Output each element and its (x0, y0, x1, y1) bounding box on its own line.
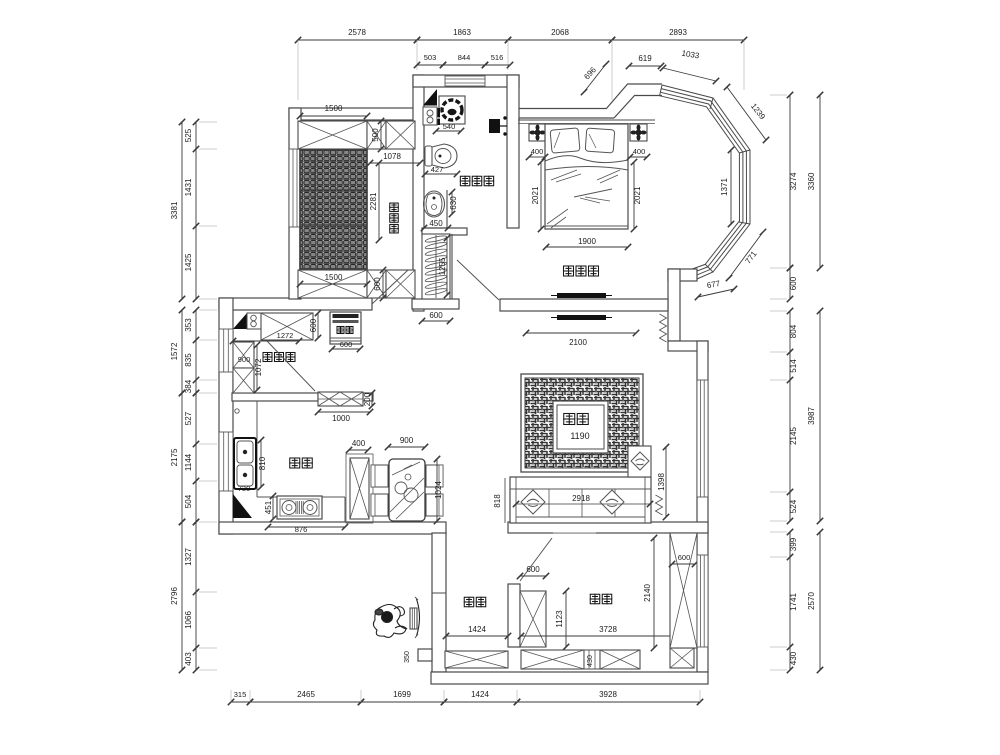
svg-text:1425: 1425 (184, 253, 193, 271)
svg-text:900: 900 (238, 355, 251, 364)
svg-text:427: 427 (431, 165, 444, 174)
svg-text:527: 527 (184, 411, 193, 425)
svg-text:835: 835 (184, 353, 193, 367)
svg-text:1699: 1699 (393, 690, 411, 699)
svg-text:2145: 2145 (789, 427, 798, 445)
svg-text:403: 403 (184, 652, 193, 666)
svg-text:315: 315 (234, 690, 247, 699)
svg-text:2021: 2021 (531, 186, 540, 204)
svg-text:876: 876 (295, 525, 308, 534)
svg-text:516: 516 (491, 53, 504, 62)
svg-text:1072: 1072 (254, 358, 263, 376)
svg-text:430: 430 (789, 651, 798, 665)
svg-text:1272: 1272 (277, 331, 294, 340)
svg-text:353: 353 (184, 318, 193, 332)
svg-text:2570: 2570 (807, 592, 816, 610)
svg-text:900: 900 (400, 436, 414, 445)
svg-text:2918: 2918 (572, 494, 590, 503)
svg-text:1431: 1431 (184, 178, 193, 196)
svg-text:1190: 1190 (570, 431, 589, 441)
svg-text:2021: 2021 (633, 186, 642, 204)
svg-text:2796: 2796 (170, 587, 179, 605)
svg-text:2175: 2175 (170, 448, 179, 466)
svg-text:1900: 1900 (578, 237, 596, 246)
svg-text:600: 600 (373, 277, 382, 291)
svg-text:1500: 1500 (325, 104, 343, 113)
svg-text:1398: 1398 (657, 473, 666, 491)
svg-text:3987: 3987 (807, 407, 816, 425)
svg-text:400: 400 (531, 147, 544, 156)
svg-text:1500: 1500 (325, 273, 343, 282)
svg-text:3381: 3381 (170, 201, 179, 219)
svg-text:1741: 1741 (789, 593, 798, 611)
svg-text:430: 430 (587, 655, 594, 667)
svg-text:1371: 1371 (720, 178, 729, 196)
svg-text:400: 400 (633, 147, 646, 156)
svg-text:2578: 2578 (348, 28, 366, 37)
svg-text:451: 451 (264, 500, 273, 514)
svg-text:1024: 1024 (434, 481, 443, 499)
svg-text:1572: 1572 (170, 342, 179, 360)
svg-text:399: 399 (789, 537, 798, 551)
svg-text:504: 504 (184, 494, 193, 508)
svg-text:600: 600 (526, 565, 540, 574)
svg-text:1863: 1863 (453, 28, 471, 37)
svg-text:630: 630 (449, 196, 458, 210)
svg-text:1078: 1078 (383, 152, 401, 161)
svg-text:1255: 1255 (438, 257, 447, 275)
svg-text:2140: 2140 (643, 584, 652, 602)
svg-text:2281: 2281 (369, 192, 378, 210)
svg-text:600: 600 (429, 311, 443, 320)
svg-text:1066: 1066 (184, 611, 193, 629)
svg-text:3728: 3728 (599, 625, 617, 634)
svg-text:1123: 1123 (555, 610, 564, 628)
svg-text:450: 450 (429, 219, 443, 228)
svg-text:350: 350 (404, 651, 411, 663)
svg-text:1144: 1144 (184, 453, 193, 471)
svg-text:1327: 1327 (184, 548, 193, 566)
svg-text:3360: 3360 (807, 172, 816, 190)
svg-text:540: 540 (443, 122, 456, 131)
svg-text:2100: 2100 (569, 338, 587, 347)
svg-text:200: 200 (363, 392, 372, 406)
svg-text:384: 384 (184, 379, 193, 393)
svg-text:600: 600 (678, 553, 691, 562)
svg-text:600: 600 (309, 318, 318, 332)
svg-text:525: 525 (184, 128, 193, 142)
svg-text:503: 503 (424, 53, 437, 62)
svg-text:2068: 2068 (551, 28, 569, 37)
svg-text:818: 818 (493, 494, 502, 508)
svg-text:524: 524 (789, 499, 798, 513)
svg-text:619: 619 (638, 54, 652, 63)
svg-text:804: 804 (789, 324, 798, 338)
svg-text:2465: 2465 (297, 690, 315, 699)
svg-text:844: 844 (458, 53, 471, 62)
svg-text:810: 810 (258, 456, 267, 470)
svg-text:1424: 1424 (468, 625, 486, 634)
svg-text:1424: 1424 (471, 690, 489, 699)
svg-text:2893: 2893 (669, 28, 687, 37)
svg-text:600: 600 (340, 340, 353, 349)
svg-text:3274: 3274 (789, 172, 798, 190)
svg-text:3928: 3928 (599, 690, 617, 699)
svg-text:1000: 1000 (332, 414, 350, 423)
svg-text:400: 400 (352, 439, 366, 448)
svg-text:600: 600 (789, 276, 798, 290)
svg-text:500: 500 (371, 128, 380, 142)
svg-text:514: 514 (789, 359, 798, 373)
svg-text:730: 730 (238, 484, 251, 493)
